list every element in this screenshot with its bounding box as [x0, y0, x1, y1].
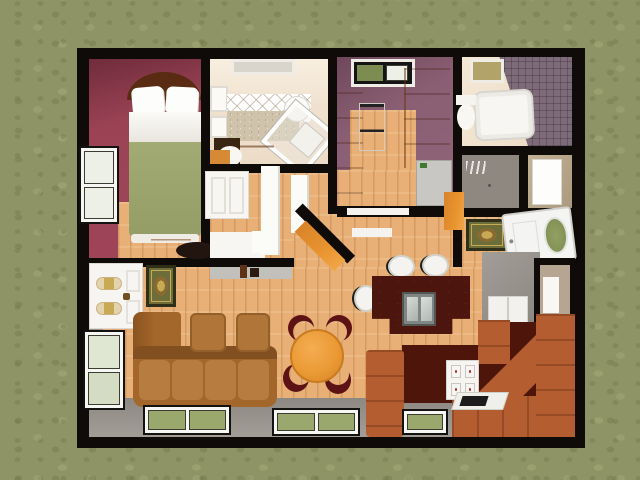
room-vanity-bathroom [210, 59, 328, 164]
window-pane [318, 413, 356, 431]
toilet-bowl [457, 104, 475, 130]
window-pane [88, 372, 120, 406]
room-bathroom [462, 57, 572, 146]
cube-panel [465, 365, 475, 378]
wardrobe-door [229, 177, 244, 214]
tray-tablet [459, 396, 488, 406]
bottom-window [402, 409, 448, 435]
shelf-box [250, 268, 259, 277]
vanity-chair [238, 130, 274, 162]
bottom-window [143, 405, 231, 435]
sofa-cushion [139, 360, 170, 400]
window-pane [84, 151, 114, 184]
closet-door-panel [532, 159, 562, 205]
niche-white-fixture [543, 277, 559, 313]
sink-basin [407, 297, 418, 321]
window-pane [88, 335, 120, 369]
window-pane [189, 410, 227, 430]
wardrobe-door [211, 177, 226, 214]
open-door-leaf [261, 166, 280, 255]
bed-sheet [129, 112, 201, 144]
wall-cabinet [210, 116, 228, 138]
dishwasher-label [420, 163, 427, 168]
skylight [231, 59, 295, 75]
floorplan-render [0, 0, 640, 480]
appliance-handle [488, 184, 491, 187]
bathroom-skylight [470, 59, 504, 83]
room-kitchen [337, 57, 453, 206]
window-pane [84, 187, 114, 220]
orange-shelf [210, 150, 230, 164]
sofa-cushion [238, 360, 269, 400]
ottoman [190, 313, 226, 352]
appliance-panel [466, 161, 515, 205]
ottoman [236, 313, 270, 352]
window-pane [407, 414, 443, 430]
island-double-sink [402, 292, 436, 326]
window-pane [277, 413, 315, 431]
sectional-arm [478, 320, 510, 364]
sofa-cushion [205, 360, 236, 400]
bar-stool [388, 255, 415, 278]
window-pane [148, 410, 186, 430]
living-room-window [83, 330, 125, 410]
bottom-window [272, 408, 360, 436]
white-range [359, 103, 385, 151]
dresser-medallion-drawer [96, 277, 122, 290]
round-dining-table [290, 329, 344, 383]
bar-stool [422, 254, 449, 277]
wall-cabinet [210, 86, 228, 112]
floor-mat [352, 228, 392, 237]
bed-blanket [129, 142, 201, 237]
dresser-panel [126, 270, 140, 292]
shelf-bottle [240, 265, 247, 278]
sink-basin [421, 297, 432, 321]
living-oriental-rug [146, 265, 176, 307]
door-threshold [347, 208, 409, 215]
bedroom-window [79, 146, 119, 224]
small-orange-cabinet [444, 192, 464, 230]
bathtub [473, 88, 536, 141]
door-handle [509, 239, 513, 243]
cube-panel [451, 365, 461, 378]
serving-tray [451, 392, 509, 410]
dresser-medallion-drawer [96, 302, 122, 315]
sectional-left-arm [366, 350, 404, 437]
decor-figurine [123, 293, 130, 300]
skylight-pane-grass [357, 65, 383, 81]
orange-hutch-cabinet [404, 68, 450, 168]
sofa-cushion [172, 360, 203, 400]
door-oval-grass-window [542, 216, 570, 256]
open-door-leaf [252, 231, 262, 253]
white-wardrobe [205, 171, 249, 219]
sectional-right [536, 314, 575, 437]
